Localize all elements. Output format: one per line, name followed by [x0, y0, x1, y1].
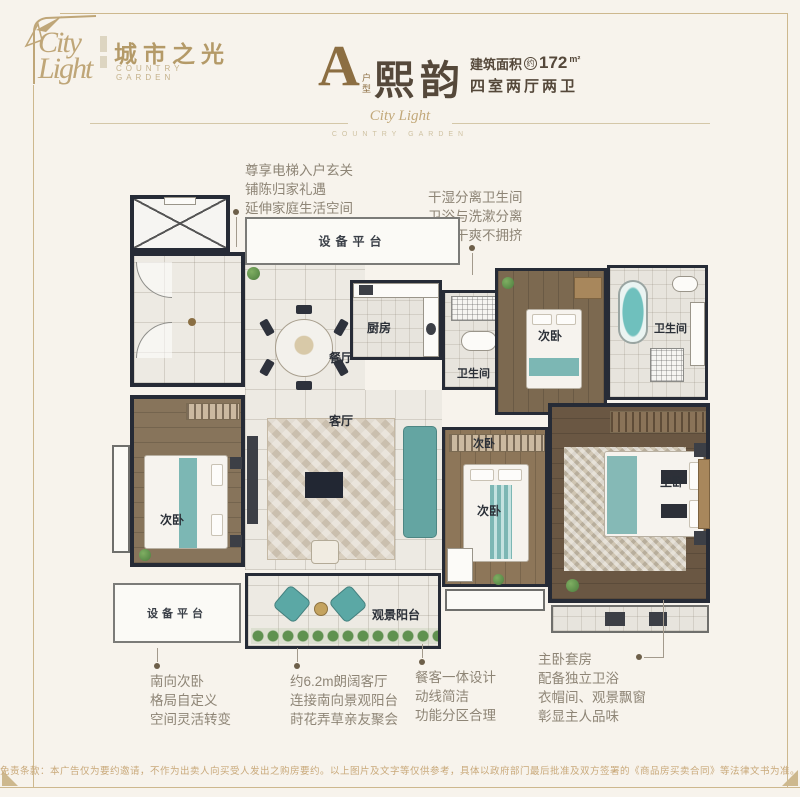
callout-master-leader-h: [644, 657, 664, 658]
plan-type-caption: 户型: [360, 73, 373, 95]
brand-logo-script: City Light: [38, 30, 96, 82]
room-foyer: [130, 252, 245, 387]
room-bedroom-left: 次卧: [130, 395, 245, 567]
plant-icon: [139, 549, 151, 561]
callout-living-bullet: [294, 663, 300, 669]
shower-icon: [650, 348, 684, 382]
plan-title: A 户型 熙韵 建筑面积 约 172 m² 四室两厅两卫: [318, 40, 598, 100]
divider-caption: COUNTRY GARDEN: [330, 131, 470, 138]
bay-window-center: [445, 589, 545, 611]
room-balcony: 观景阳台: [245, 573, 441, 649]
armchair: [311, 540, 339, 564]
callout-bedroom-south-bullet: [154, 663, 160, 669]
room-kitchen: 厨房: [350, 280, 442, 360]
dining-chair: [259, 318, 275, 336]
coffee-table: [305, 472, 343, 498]
room-bedroom-top-right: 次卧: [495, 268, 607, 415]
callout-dining: 餐客一体设计 动线简洁 功能分区合理: [415, 668, 496, 725]
room-bedroom-center: 次卧 次卧: [442, 427, 548, 587]
lounge-chair: [328, 584, 367, 623]
floorplan-poster: { "header": { "logo": { "script": "City …: [0, 0, 800, 797]
callout-master-leader-v: [663, 600, 664, 657]
door-arc-icon: [136, 262, 172, 298]
callout-bedroom-south-leader: [157, 648, 158, 662]
plant-icon: [493, 574, 504, 585]
dining-chair: [296, 305, 312, 314]
door-arc-icon: [136, 322, 172, 358]
room-equipment-platform-bottom: 设备平台: [113, 583, 241, 643]
master-window-seat: [551, 605, 709, 633]
lounge-chair: [272, 584, 311, 623]
area-label: 建筑面积: [470, 54, 522, 73]
area-approx-circle: 约: [524, 57, 537, 70]
plan-area: 建筑面积 约 172 m²: [470, 53, 580, 73]
area-unit: m²: [569, 54, 580, 64]
frame-border-bottom: [0, 787, 800, 788]
floorplan: 设备平台 餐厅 厨房 卫生间: [95, 195, 710, 653]
entry-dot: [188, 318, 196, 326]
frame-border-left: [33, 85, 34, 787]
callout-master: 主卧套房 配备独立卫浴 衣帽间、观景飘窗 彰显主人品味: [538, 650, 646, 726]
sofa: [403, 426, 437, 538]
room-dining: 餐厅: [245, 265, 365, 390]
toilet-icon: [461, 331, 497, 351]
room-master-bedroom: 主卧: [548, 403, 710, 603]
frame-border-top: [60, 13, 788, 14]
callout-living: 约6.2m朗阔客厅 连接南向景观阳台 莳花弄草亲友聚会: [290, 672, 398, 729]
divider-monogram: City Light: [352, 108, 448, 125]
bay-window-left: [112, 445, 130, 553]
dining-chair: [259, 358, 275, 376]
side-table: [314, 602, 328, 616]
brand-name-en: COUNTRY GARDEN: [116, 64, 238, 82]
dining-chair: [333, 318, 349, 336]
dining-chair: [296, 381, 312, 390]
plant-icon: [247, 267, 260, 280]
callout-dining-bullet: [419, 659, 425, 665]
plan-type-letter: A: [318, 40, 360, 92]
desk: [447, 548, 473, 582]
callout-dining-leader: [422, 644, 423, 658]
plant-icon: [502, 277, 514, 289]
area-value: 172: [539, 53, 567, 73]
plan-type-name: 熙韵: [374, 48, 466, 106]
disclaimer: 免责条款：本广告仅为要约邀请，不作为出卖人向买受人发出之购房要约。以上图片及文字…: [0, 763, 800, 777]
toilet-icon: [672, 276, 698, 292]
frame-border-right: [787, 13, 788, 787]
callout-bedroom-south: 南向次卧 格局自定义 空间灵活转变: [150, 672, 231, 729]
elevator-shaft: [130, 195, 230, 252]
dining-table: [275, 319, 333, 377]
callout-living-leader: [297, 648, 298, 662]
room-living: 客厅: [245, 390, 442, 570]
room-equipment-platform-top: 设备平台: [245, 217, 460, 265]
plant-icon: [566, 579, 579, 592]
planter-strip: [251, 628, 438, 644]
bathtub-icon: [618, 280, 648, 344]
room-bathroom-top-right: 卫生间: [607, 265, 708, 400]
plan-layout: 四室两厅两卫: [470, 75, 578, 96]
